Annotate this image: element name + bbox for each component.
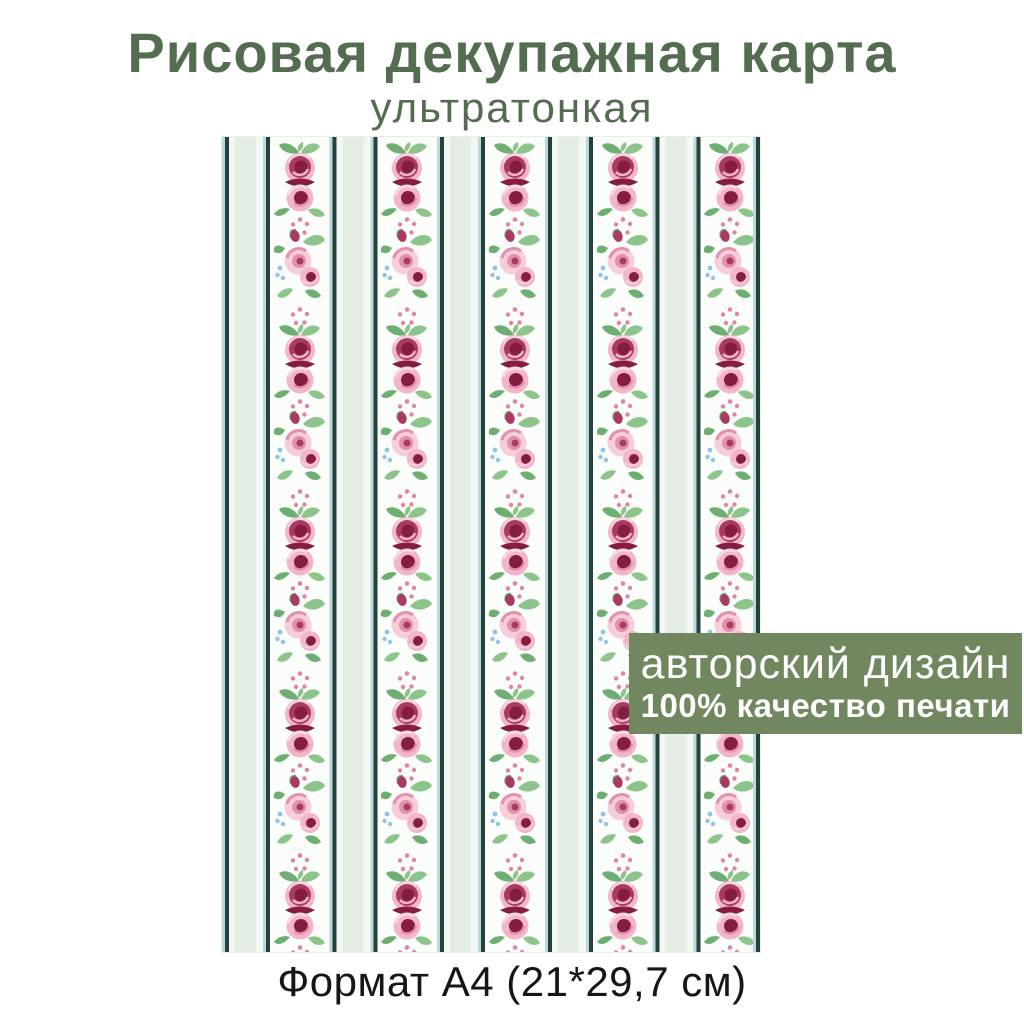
rose-light-motif <box>488 592 542 664</box>
rose-light-motif <box>596 228 650 300</box>
rose-light-motif <box>703 774 757 846</box>
rose-large-motif <box>702 505 758 583</box>
rose-light-motif <box>488 774 542 846</box>
print-quality-label: 100% качество печати <box>641 688 1011 724</box>
rose-light-motif <box>596 774 650 846</box>
rose-light-motif <box>380 592 434 664</box>
rose-large-motif <box>595 505 651 583</box>
rose-large-motif <box>379 323 435 401</box>
design-quality-badge: авторский дизайн 100% качество печати <box>629 633 1022 734</box>
dots-motif <box>719 944 741 952</box>
rose-light-motif <box>703 410 757 482</box>
rose-light-motif <box>380 228 434 300</box>
rose-light-motif <box>380 774 434 846</box>
rose-large-motif <box>272 141 328 219</box>
rose-light-motif <box>703 228 757 300</box>
product-subtitle: ультратонкая <box>0 84 1024 132</box>
rose-large-motif <box>702 323 758 401</box>
rose-large-motif <box>379 869 435 947</box>
rose-large-motif <box>487 687 543 765</box>
rose-light-motif <box>273 774 327 846</box>
rose-large-motif <box>487 141 543 219</box>
rose-large-motif <box>272 687 328 765</box>
rose-large-motif <box>487 869 543 947</box>
rose-large-motif <box>702 869 758 947</box>
rose-large-motif <box>272 869 328 947</box>
rose-large-motif <box>487 505 543 583</box>
rose-large-motif <box>272 505 328 583</box>
rose-light-motif <box>273 228 327 300</box>
rose-large-motif <box>595 323 651 401</box>
a4-sheet-preview <box>222 137 760 952</box>
rose-large-motif <box>379 687 435 765</box>
rose-large-motif <box>487 323 543 401</box>
rose-light-motif <box>273 592 327 664</box>
rose-light-motif <box>488 410 542 482</box>
rose-light-motif <box>596 410 650 482</box>
format-label: Формат А4 (21*29,7 см) <box>0 958 1024 1006</box>
dots-motif <box>504 944 526 952</box>
rose-large-motif <box>595 869 651 947</box>
dots-motif <box>396 944 418 952</box>
rose-light-motif <box>488 228 542 300</box>
rose-large-motif <box>379 505 435 583</box>
product-title: Рисовая декупажная карта <box>0 24 1024 83</box>
rose-light-motif <box>380 410 434 482</box>
author-design-label: авторский дизайн <box>641 642 1011 687</box>
rose-large-motif <box>702 141 758 219</box>
dots-motif <box>612 944 634 952</box>
rose-large-motif <box>379 141 435 219</box>
rose-large-motif <box>595 141 651 219</box>
rose-light-motif <box>273 410 327 482</box>
dots-motif <box>289 944 311 952</box>
rose-large-motif <box>272 323 328 401</box>
